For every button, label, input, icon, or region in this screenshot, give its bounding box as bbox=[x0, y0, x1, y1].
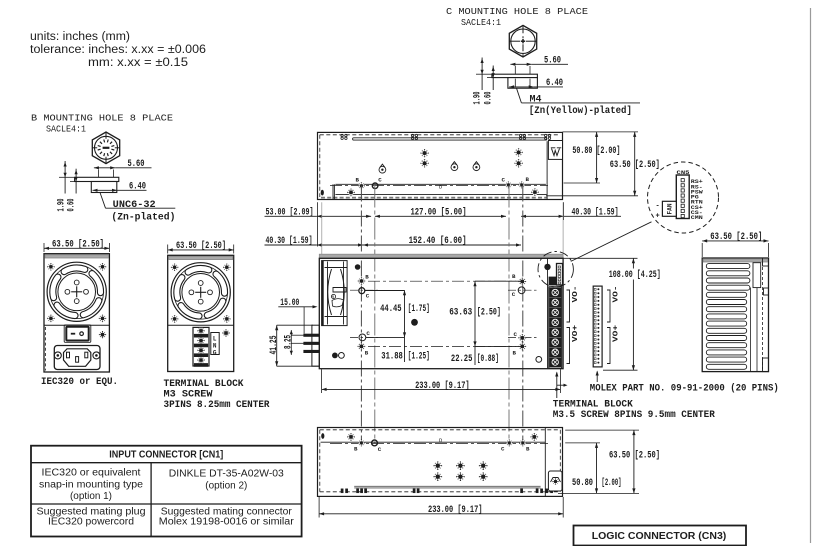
svg-text:C: C bbox=[501, 446, 505, 453]
svg-text:Molex 19198-0016 or similar: Molex 19198-0016 or similar bbox=[159, 517, 295, 528]
svg-text:mm: x.xx = ±0.15: mm: x.xx = ±0.15 bbox=[88, 57, 188, 69]
svg-text:44.45: 44.45 bbox=[380, 304, 402, 315]
svg-text:B: B bbox=[354, 446, 358, 453]
svg-text:8.25: 8.25 bbox=[284, 335, 295, 349]
svg-text:B: B bbox=[512, 273, 516, 280]
svg-text:N: N bbox=[213, 343, 217, 350]
svg-text:B: B bbox=[356, 176, 360, 183]
svg-text:+: + bbox=[656, 213, 660, 221]
svg-text:C: C bbox=[502, 176, 506, 183]
svg-text:TERMINAL BLOCK: TERMINAL BLOCK bbox=[164, 379, 244, 390]
svg-text:41.25: 41.25 bbox=[269, 336, 280, 355]
svg-text:B: B bbox=[526, 176, 530, 183]
svg-text:SACLE4:1: SACLE4:1 bbox=[461, 17, 501, 28]
svg-text:LOGIC CONNECTOR (CN3): LOGIC CONNECTOR (CN3) bbox=[592, 530, 727, 542]
svg-text:50.80: 50.80 bbox=[572, 478, 593, 489]
svg-text:L: L bbox=[213, 336, 217, 343]
svg-text:units: inches (mm): units: inches (mm) bbox=[30, 31, 130, 43]
svg-text:50.80 [2.00]: 50.80 [2.00] bbox=[572, 145, 620, 157]
svg-text:(option 1): (option 1) bbox=[70, 491, 112, 502]
svg-text:tolerance: inches: x.xx = ±0.0: tolerance: inches: x.xx = ±0.006 bbox=[30, 44, 206, 56]
svg-text:C: C bbox=[366, 330, 370, 337]
svg-text:[1.25]: [1.25] bbox=[408, 351, 430, 363]
svg-text:63.50 [2.50]: 63.50 [2.50] bbox=[609, 449, 660, 461]
svg-text:C: C bbox=[378, 176, 382, 183]
svg-text:6.40: 6.40 bbox=[129, 182, 146, 193]
svg-text:1.90: 1.90 bbox=[473, 92, 484, 105]
svg-text:5.60: 5.60 bbox=[544, 56, 561, 67]
svg-text:VO+: VO+ bbox=[613, 325, 621, 342]
svg-text:5.60: 5.60 bbox=[128, 159, 145, 170]
svg-text:[2.50]: [2.50] bbox=[477, 307, 501, 319]
svg-text:C MOUNTING HOLE 8 PLACE: C MOUNTING HOLE 8 PLACE bbox=[446, 6, 588, 17]
svg-text:-: - bbox=[656, 203, 660, 211]
svg-text:C: C bbox=[378, 446, 382, 453]
svg-text:CMN: CMN bbox=[691, 214, 704, 221]
svg-text:(option 2): (option 2) bbox=[205, 480, 247, 491]
svg-text:DINKLE DT-35-A02W-03: DINKLE DT-35-A02W-03 bbox=[169, 468, 284, 479]
svg-text:22.25: 22.25 bbox=[451, 354, 473, 365]
svg-text:IEC320 powercord: IEC320 powercord bbox=[48, 517, 134, 528]
svg-text:B MOUNTING HOLE 8 PLACE: B MOUNTING HOLE 8 PLACE bbox=[31, 113, 173, 124]
svg-text:B: B bbox=[365, 274, 369, 281]
svg-text:0.60: 0.60 bbox=[66, 199, 77, 212]
svg-text:3PINS 8.25mm CENTER: 3PINS 8.25mm CENTER bbox=[164, 400, 270, 411]
svg-text:C: C bbox=[366, 293, 370, 300]
svg-text:B: B bbox=[365, 350, 369, 357]
svg-text:6.40: 6.40 bbox=[546, 78, 563, 89]
svg-text:VO-: VO- bbox=[572, 286, 580, 303]
svg-text:[2.00]: [2.00] bbox=[602, 477, 622, 489]
svg-text:0: 0 bbox=[332, 295, 335, 301]
svg-text:B: B bbox=[513, 350, 517, 357]
svg-text:VO+: VO+ bbox=[572, 325, 580, 342]
svg-text:M3.5 SCREW 8PINS 9.5mm CENTER: M3.5 SCREW 8PINS 9.5mm CENTER bbox=[553, 410, 715, 421]
svg-text:TERMINAL BLOCK: TERMINAL BLOCK bbox=[553, 399, 633, 410]
svg-text:(Zn-plated): (Zn-plated) bbox=[111, 212, 175, 224]
svg-text:63.50 [2.50]: 63.50 [2.50] bbox=[610, 159, 660, 171]
svg-text:108.00 [4.25]: 108.00 [4.25] bbox=[609, 269, 661, 281]
svg-text:VO-: VO- bbox=[613, 286, 621, 303]
svg-text:31.88: 31.88 bbox=[381, 352, 403, 363]
svg-text:IEC320 or EQU.: IEC320 or EQU. bbox=[41, 377, 118, 388]
svg-text:IEC320 or equivalent: IEC320 or equivalent bbox=[42, 468, 141, 479]
svg-text:[Zn(Yellow)-plated]: [Zn(Yellow)-plated] bbox=[529, 105, 632, 117]
svg-text:233.00 [9.17]: 233.00 [9.17] bbox=[428, 504, 483, 516]
svg-text:[0.88]: [0.88] bbox=[477, 353, 499, 365]
svg-text:40.30 [1.59]: 40.30 [1.59] bbox=[572, 207, 619, 219]
svg-text:CN5: CN5 bbox=[677, 169, 691, 176]
svg-text:G: G bbox=[213, 350, 217, 357]
svg-text:snap-in mounting type: snap-in mounting type bbox=[39, 479, 143, 490]
svg-text:63.63: 63.63 bbox=[449, 308, 472, 319]
svg-text:FAN: FAN bbox=[667, 203, 674, 214]
svg-text:MOLEX PART NO. 09-91-2000 (20: MOLEX PART NO. 09-91-2000 (20 PINS) bbox=[590, 383, 779, 395]
svg-text:C: C bbox=[512, 291, 516, 298]
svg-text:0.60: 0.60 bbox=[484, 92, 495, 105]
svg-text:[1.75]: [1.75] bbox=[408, 303, 430, 315]
svg-text:SACLE4:1: SACLE4:1 bbox=[46, 124, 86, 135]
svg-text:INPUT CONNECTOR [CN1]: INPUT CONNECTOR [CN1] bbox=[109, 448, 223, 460]
svg-text:233.00 [9.17]: 233.00 [9.17] bbox=[415, 380, 470, 392]
svg-text:B: B bbox=[526, 446, 530, 453]
svg-text:C: C bbox=[514, 331, 518, 338]
svg-text:M4: M4 bbox=[530, 95, 542, 106]
svg-text:M3 SCREW: M3 SCREW bbox=[164, 390, 213, 401]
svg-text:UNC6-32: UNC6-32 bbox=[113, 200, 156, 211]
